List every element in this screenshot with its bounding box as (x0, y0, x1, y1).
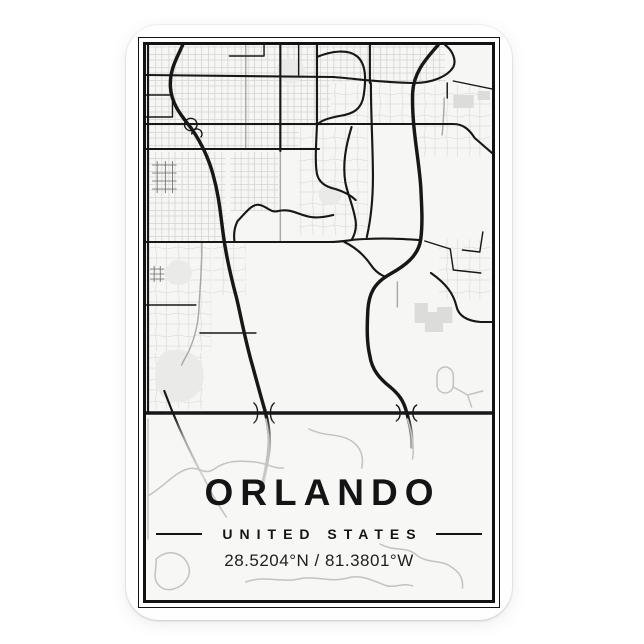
magnet-card: ORLANDO UNITED STATES 28.5204°N / 81.380… (126, 25, 512, 620)
page: { "poster": { "title": "ORLANDO", "subti… (0, 0, 644, 644)
poster-frame-inner: ORLANDO UNITED STATES 28.5204°N / 81.380… (143, 42, 495, 603)
map-bottom-fade (146, 417, 492, 600)
product-photo: ORLANDO UNITED STATES 28.5204°N / 81.380… (0, 0, 644, 644)
poster-frame-outer: ORLANDO UNITED STATES 28.5204°N / 81.380… (138, 37, 500, 608)
city-map (146, 45, 492, 600)
